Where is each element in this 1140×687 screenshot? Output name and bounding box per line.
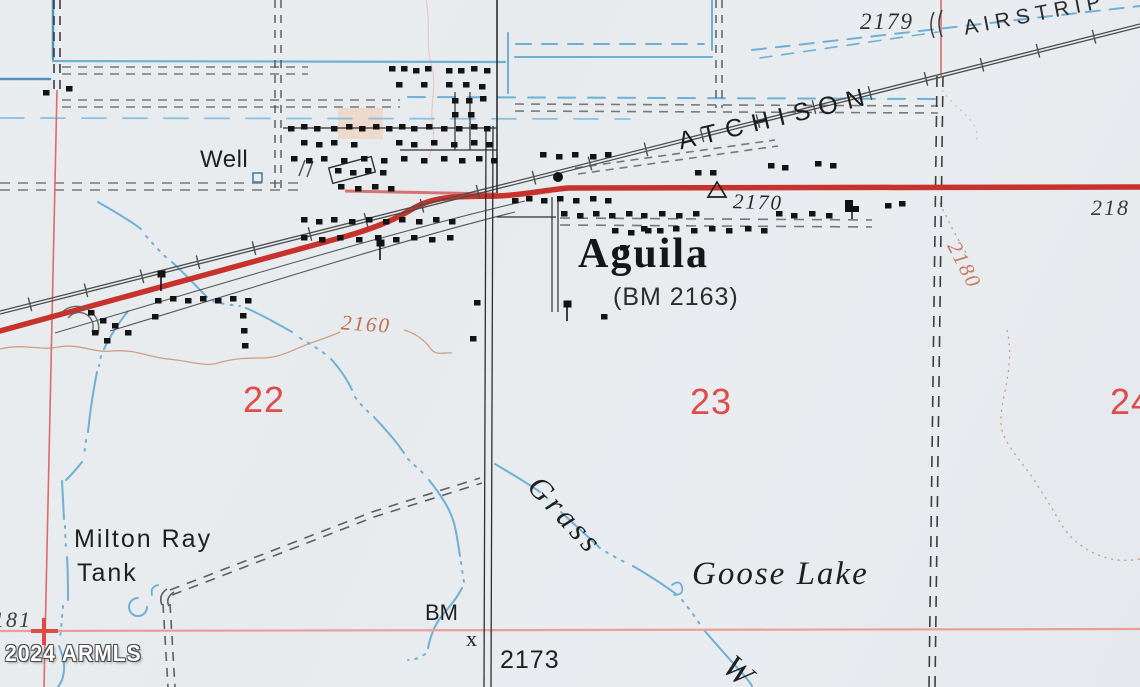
stream-a6-dots (461, 562, 464, 582)
section-24-label: 24 (1110, 384, 1140, 420)
stream-a3-dots (300, 338, 328, 356)
stream-a3 (246, 308, 292, 332)
urban-tint-block (338, 108, 383, 139)
town-name-label: Aguila (578, 233, 709, 275)
tank-circle (129, 598, 147, 616)
tank-branch-dots1 (99, 356, 101, 366)
section-line-south (0, 629, 1140, 631)
hydrography (0, 0, 1140, 687)
trail-east-2 (935, 76, 943, 687)
contour-faint-north (426, 0, 434, 158)
benchmark-elevation-label: 2173 (500, 648, 560, 673)
milton-trail-2 (172, 483, 482, 595)
main-road-south-2 (491, 126, 493, 687)
stream-a5 (374, 417, 404, 453)
stream-a1-dots (146, 236, 170, 261)
town-streets (283, 0, 558, 687)
section-22-label: 22 (243, 382, 285, 418)
stream-a5-dots (408, 459, 426, 476)
trail-south-2 (170, 604, 175, 687)
tank-branch-3 (66, 462, 82, 480)
tank-stream-dots1 (65, 526, 66, 552)
well-marker (253, 173, 262, 182)
contour-2160-label: 2160 (340, 312, 391, 336)
trail-south-1 (163, 604, 168, 687)
contour-2180-dotted (940, 90, 1140, 560)
tank-name-line1: Milton Ray (74, 527, 212, 552)
town-benchmark-label: (BM 2163) (613, 285, 739, 310)
road-f2 (578, 146, 778, 174)
tank-branch-dots2 (84, 440, 86, 456)
trail-hook-1 (161, 589, 167, 605)
tank-mini-arc (152, 585, 158, 595)
contour-faint-northeast (942, 90, 977, 142)
spot-2170-label: 2170 (733, 191, 784, 214)
benchmark-bm-label: BM (425, 602, 458, 624)
benchmark-x-marker: x (466, 628, 477, 650)
goose-lake-label: Goose Lake (692, 558, 869, 591)
contour-2160-line-east (404, 330, 452, 353)
section-line-west (44, 90, 57, 687)
milton-trail-1 (170, 478, 480, 590)
rail-crossticks (28, 30, 1095, 311)
tank-stream-dots2 (60, 606, 63, 640)
street-5 (552, 197, 558, 312)
grass-wash-3-dots (682, 600, 701, 626)
airstrip-ditch-dashed-2 (760, 32, 938, 58)
flag-buildings (158, 240, 571, 321)
tank-branch-2 (88, 372, 97, 432)
water-tank-dot (553, 172, 563, 182)
road-e2 (560, 225, 872, 227)
grass-wash-2-dots (606, 552, 627, 563)
stream-a6 (429, 480, 460, 556)
road-e1 (560, 218, 872, 220)
elevation-218-partial-label: 218 (1091, 197, 1130, 219)
tank-name-line2: Tank (77, 561, 138, 586)
intermittent-ditch (0, 118, 630, 119)
topographic-map: Well ATCHISON AIRSTRIP 2179 2170 Aguila … (0, 0, 1140, 687)
tank-stream-2 (67, 557, 68, 600)
section-23-label: 23 (690, 384, 732, 420)
stream-a4-dots (355, 397, 372, 415)
stream-a1 (98, 202, 141, 229)
partial-181-label: 181 (0, 609, 32, 631)
well-label: Well (200, 148, 248, 172)
canal-top (53, 61, 505, 62)
contour-2180-lower (1001, 330, 1140, 560)
l-building (845, 200, 859, 212)
elevation-2179-label: 2179 (860, 10, 914, 33)
section-lines (0, 0, 1140, 687)
armls-watermark: 2024 ARMLS (5, 640, 142, 667)
map-linework (0, 0, 1140, 687)
stream-a7-dots (408, 654, 425, 660)
road-c2 (515, 111, 938, 113)
trail-east-1 (929, 76, 937, 687)
tank-stream-1 (62, 481, 64, 519)
stream-a4 (331, 359, 352, 390)
grass-wash-3 (633, 566, 676, 594)
